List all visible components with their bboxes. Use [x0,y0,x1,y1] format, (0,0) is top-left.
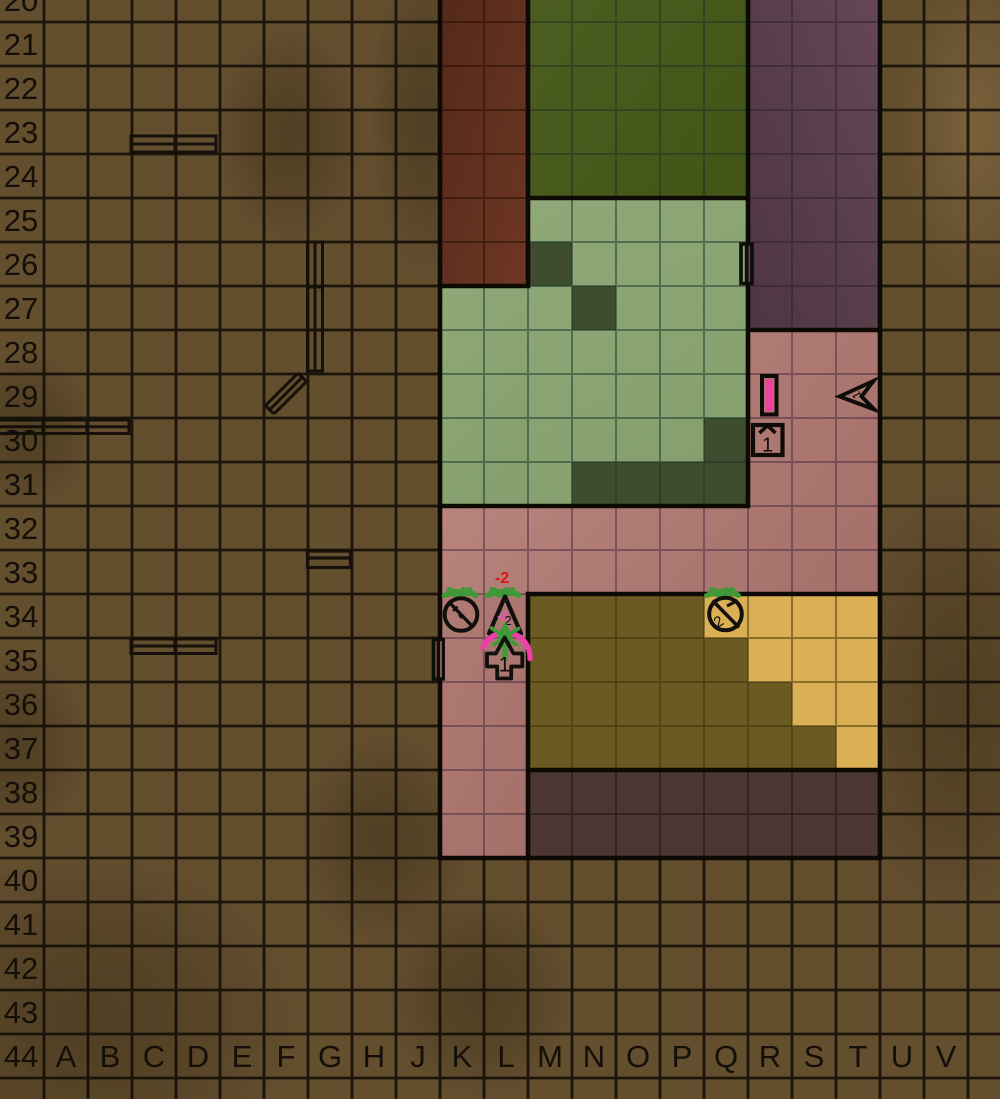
svg-text:B: B [100,1039,121,1074]
svg-text:26: 26 [4,247,38,282]
svg-text:K: K [452,1039,473,1074]
svg-text:32: 32 [4,511,38,546]
svg-text:E: E [232,1039,253,1074]
svg-text:33: 33 [4,555,38,590]
svg-text:41: 41 [4,907,38,942]
svg-text:N: N [583,1039,605,1074]
svg-text:M: M [537,1039,563,1074]
svg-text:-2: -2 [495,570,509,587]
svg-text:J: J [410,1039,426,1074]
svg-text:R: R [759,1039,781,1074]
svg-text:24: 24 [4,159,38,194]
svg-text:O: O [626,1039,650,1074]
svg-text:29: 29 [4,379,38,414]
svg-text:U: U [891,1039,913,1074]
svg-text:34: 34 [4,599,38,634]
svg-text:42: 42 [4,951,38,986]
svg-text:P: P [672,1039,693,1074]
svg-text:S: S [804,1039,825,1074]
svg-text:31: 31 [4,467,38,502]
svg-text:35: 35 [4,643,38,678]
svg-text:A: A [56,1039,77,1074]
svg-text:21: 21 [4,27,38,62]
svg-text:37: 37 [4,731,38,766]
svg-text:30: 30 [4,423,38,458]
svg-text:40: 40 [4,863,38,898]
svg-text:28: 28 [4,335,38,370]
svg-text:1: 1 [762,435,773,457]
svg-text:36: 36 [4,687,38,722]
svg-text:T: T [849,1039,868,1074]
svg-text:G: G [318,1039,342,1074]
svg-text:25: 25 [4,203,38,238]
svg-text:43: 43 [4,995,38,1030]
svg-text:L: L [497,1039,514,1074]
svg-text:20: 20 [4,0,38,18]
svg-text:44: 44 [4,1039,38,1074]
svg-text:C: C [143,1039,165,1074]
svg-text:D: D [187,1039,209,1074]
svg-text:22: 22 [4,71,38,106]
svg-text:27: 27 [4,291,38,326]
svg-text:V: V [936,1039,957,1074]
svg-text:F: F [277,1039,296,1074]
svg-text:Q: Q [714,1039,738,1074]
svg-text:23: 23 [4,115,38,150]
svg-text:38: 38 [4,775,38,810]
svg-text:1: 1 [499,654,511,677]
svg-text:39: 39 [4,819,38,854]
svg-text:H: H [363,1039,385,1074]
